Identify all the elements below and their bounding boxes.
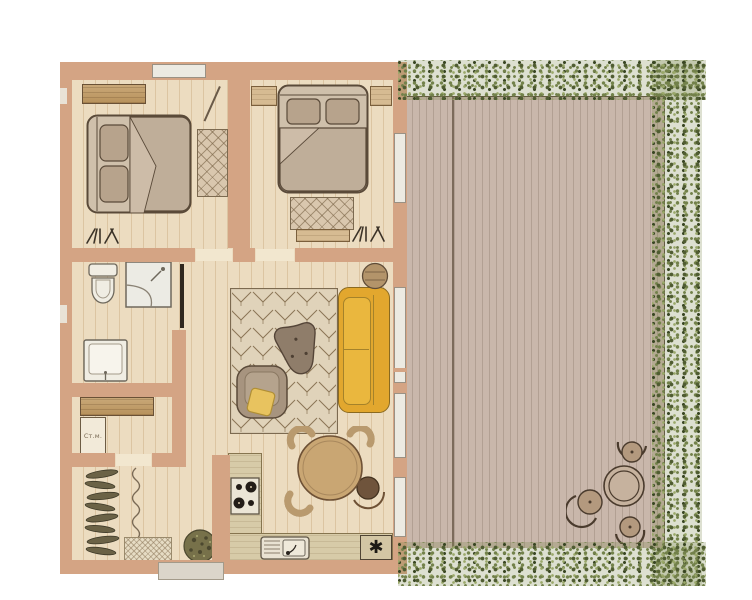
wall-bathroom-right: [172, 330, 186, 383]
sofa-cushion-divider: [343, 349, 369, 350]
wardrobe: [82, 84, 146, 104]
sofa-seat-cushions: [343, 297, 371, 405]
glass-door-living-3: [394, 477, 406, 537]
washbasin: [83, 339, 128, 382]
wall-utility-bottom-a: [60, 453, 115, 467]
side-table: [361, 262, 389, 290]
double-bed-2: [277, 84, 369, 194]
bench: [296, 229, 350, 242]
appliance-symbol: ✱: [368, 537, 383, 558]
wall-top: [60, 62, 407, 80]
nightstand-left: [251, 86, 277, 106]
utility-cabinet: [80, 397, 154, 416]
glass-door-living-2: [394, 393, 406, 458]
door-opening-bedroom-2: [256, 249, 294, 261]
kitchen-sink: [260, 536, 310, 560]
coat-hooks-2: [350, 224, 390, 244]
window-bedroom-2-right: [394, 133, 406, 203]
deck-seam-line: [452, 97, 454, 548]
coat-hooks-1: [84, 226, 124, 246]
door-opening-bedroom-1: [196, 249, 232, 261]
window-bedroom-1-top: [152, 64, 206, 78]
washing-machine-label: Ст.м.: [84, 432, 102, 440]
wall-bottom: [60, 560, 407, 574]
wall-entry-kitchen: [212, 455, 230, 560]
window-left-b: [60, 305, 67, 323]
dining-table-with-chairs: [284, 426, 394, 518]
nightstand-right: [370, 86, 392, 106]
wall-mid-a: [60, 248, 195, 262]
double-bed-1: [86, 114, 192, 214]
corner-shower: [125, 261, 172, 308]
stove: [230, 477, 260, 515]
entrance-door: [158, 562, 224, 580]
sofa-back-line: [373, 295, 374, 405]
door-opening-utility: [116, 454, 151, 466]
sofa: [338, 287, 390, 413]
bathroom-door-leaf: [180, 264, 184, 328]
floor-plan: Ст.м.: [0, 0, 752, 600]
wall-bathroom-bottom: [72, 383, 186, 397]
bedroom-rug-1: [197, 129, 228, 197]
greenery-bottom: [398, 542, 706, 586]
bedroom-rug-2: [290, 197, 354, 230]
appliance-tile: ✱: [360, 535, 392, 560]
toilet: [87, 262, 119, 306]
wall-bedroom-divider: [228, 80, 250, 248]
washing-machine: Ст.м.: [80, 417, 106, 455]
closet-door-line: [221, 86, 223, 124]
armchair: [235, 364, 289, 420]
glass-door-mullion: [394, 368, 406, 372]
wall-utility-bottom-b: [152, 453, 186, 467]
wall-mid-c: [295, 248, 407, 262]
wall-mid-b: [233, 248, 255, 262]
window-left-a: [60, 88, 67, 104]
throw-pillow: [246, 387, 275, 416]
greenery-right: [652, 60, 702, 586]
